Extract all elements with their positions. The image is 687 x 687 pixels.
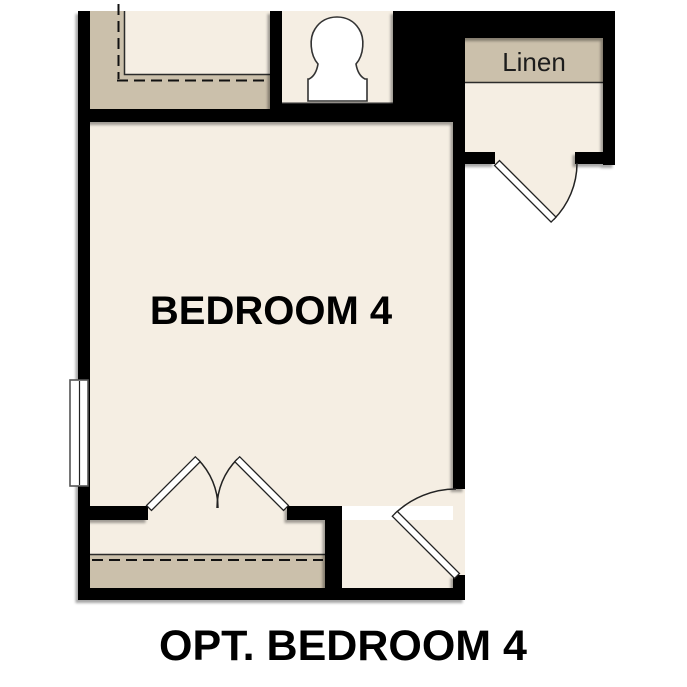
wall-linen-right	[603, 38, 615, 165]
toilet-icon	[308, 17, 367, 101]
wall-lower-closet-right	[325, 506, 342, 598]
wall-bedroom-bottom-left-stub	[78, 506, 148, 520]
upper-closet-floor	[124, 11, 270, 75]
wall-linen-stub-left	[455, 152, 495, 164]
wall-bedroom-top-left	[78, 109, 282, 122]
wall-bedroom-right	[453, 122, 465, 489]
window-icon	[70, 380, 88, 486]
floor-plan-drawing: Linen BEDROOM 4 OPT. BEDROOM 4	[0, 0, 687, 687]
wall-linen-stub-right	[575, 152, 615, 164]
plan-caption: OPT. BEDROOM 4	[159, 622, 527, 670]
wall-closet-alcove-divider	[270, 11, 282, 109]
double-doorway-floor	[148, 506, 287, 520]
linen-doorway-floor	[495, 152, 575, 164]
lower-closet-floor	[90, 520, 325, 555]
wall-linen-top	[465, 11, 615, 38]
linen-label: Linen	[502, 47, 566, 77]
bedroom-label: BEDROOM 4	[150, 289, 393, 333]
entry-doorway-floor	[453, 489, 465, 575]
floor-plan: Linen BEDROOM 4 OPT. BEDROOM 4	[0, 0, 687, 687]
wall-bottom-outer	[78, 588, 465, 600]
linen-floor	[465, 83, 603, 152]
wall-block-top-right	[393, 11, 465, 122]
